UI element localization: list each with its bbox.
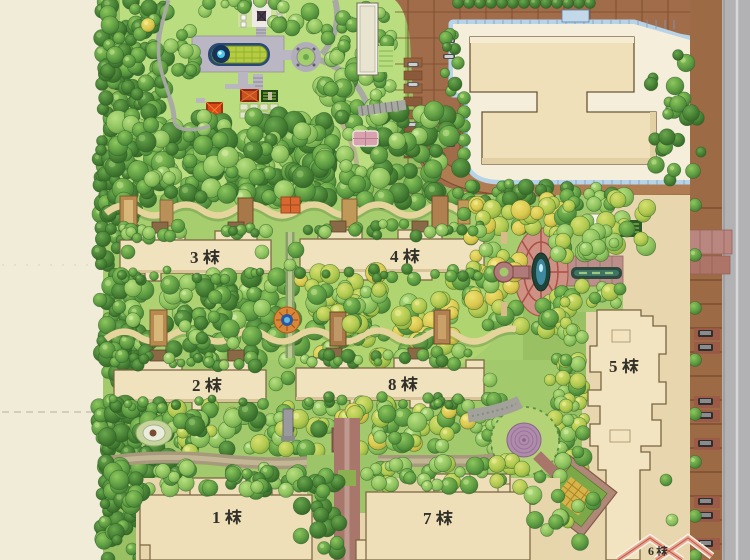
svg-text:8: 8	[388, 375, 397, 394]
svg-text:1: 1	[212, 508, 221, 527]
svg-text:5: 5	[609, 357, 618, 376]
svg-text:2: 2	[192, 376, 201, 395]
svg-text:7: 7	[423, 509, 432, 528]
svg-text:3: 3	[190, 248, 199, 267]
svg-text:6: 6	[648, 544, 654, 558]
svg-text:4: 4	[390, 247, 399, 266]
